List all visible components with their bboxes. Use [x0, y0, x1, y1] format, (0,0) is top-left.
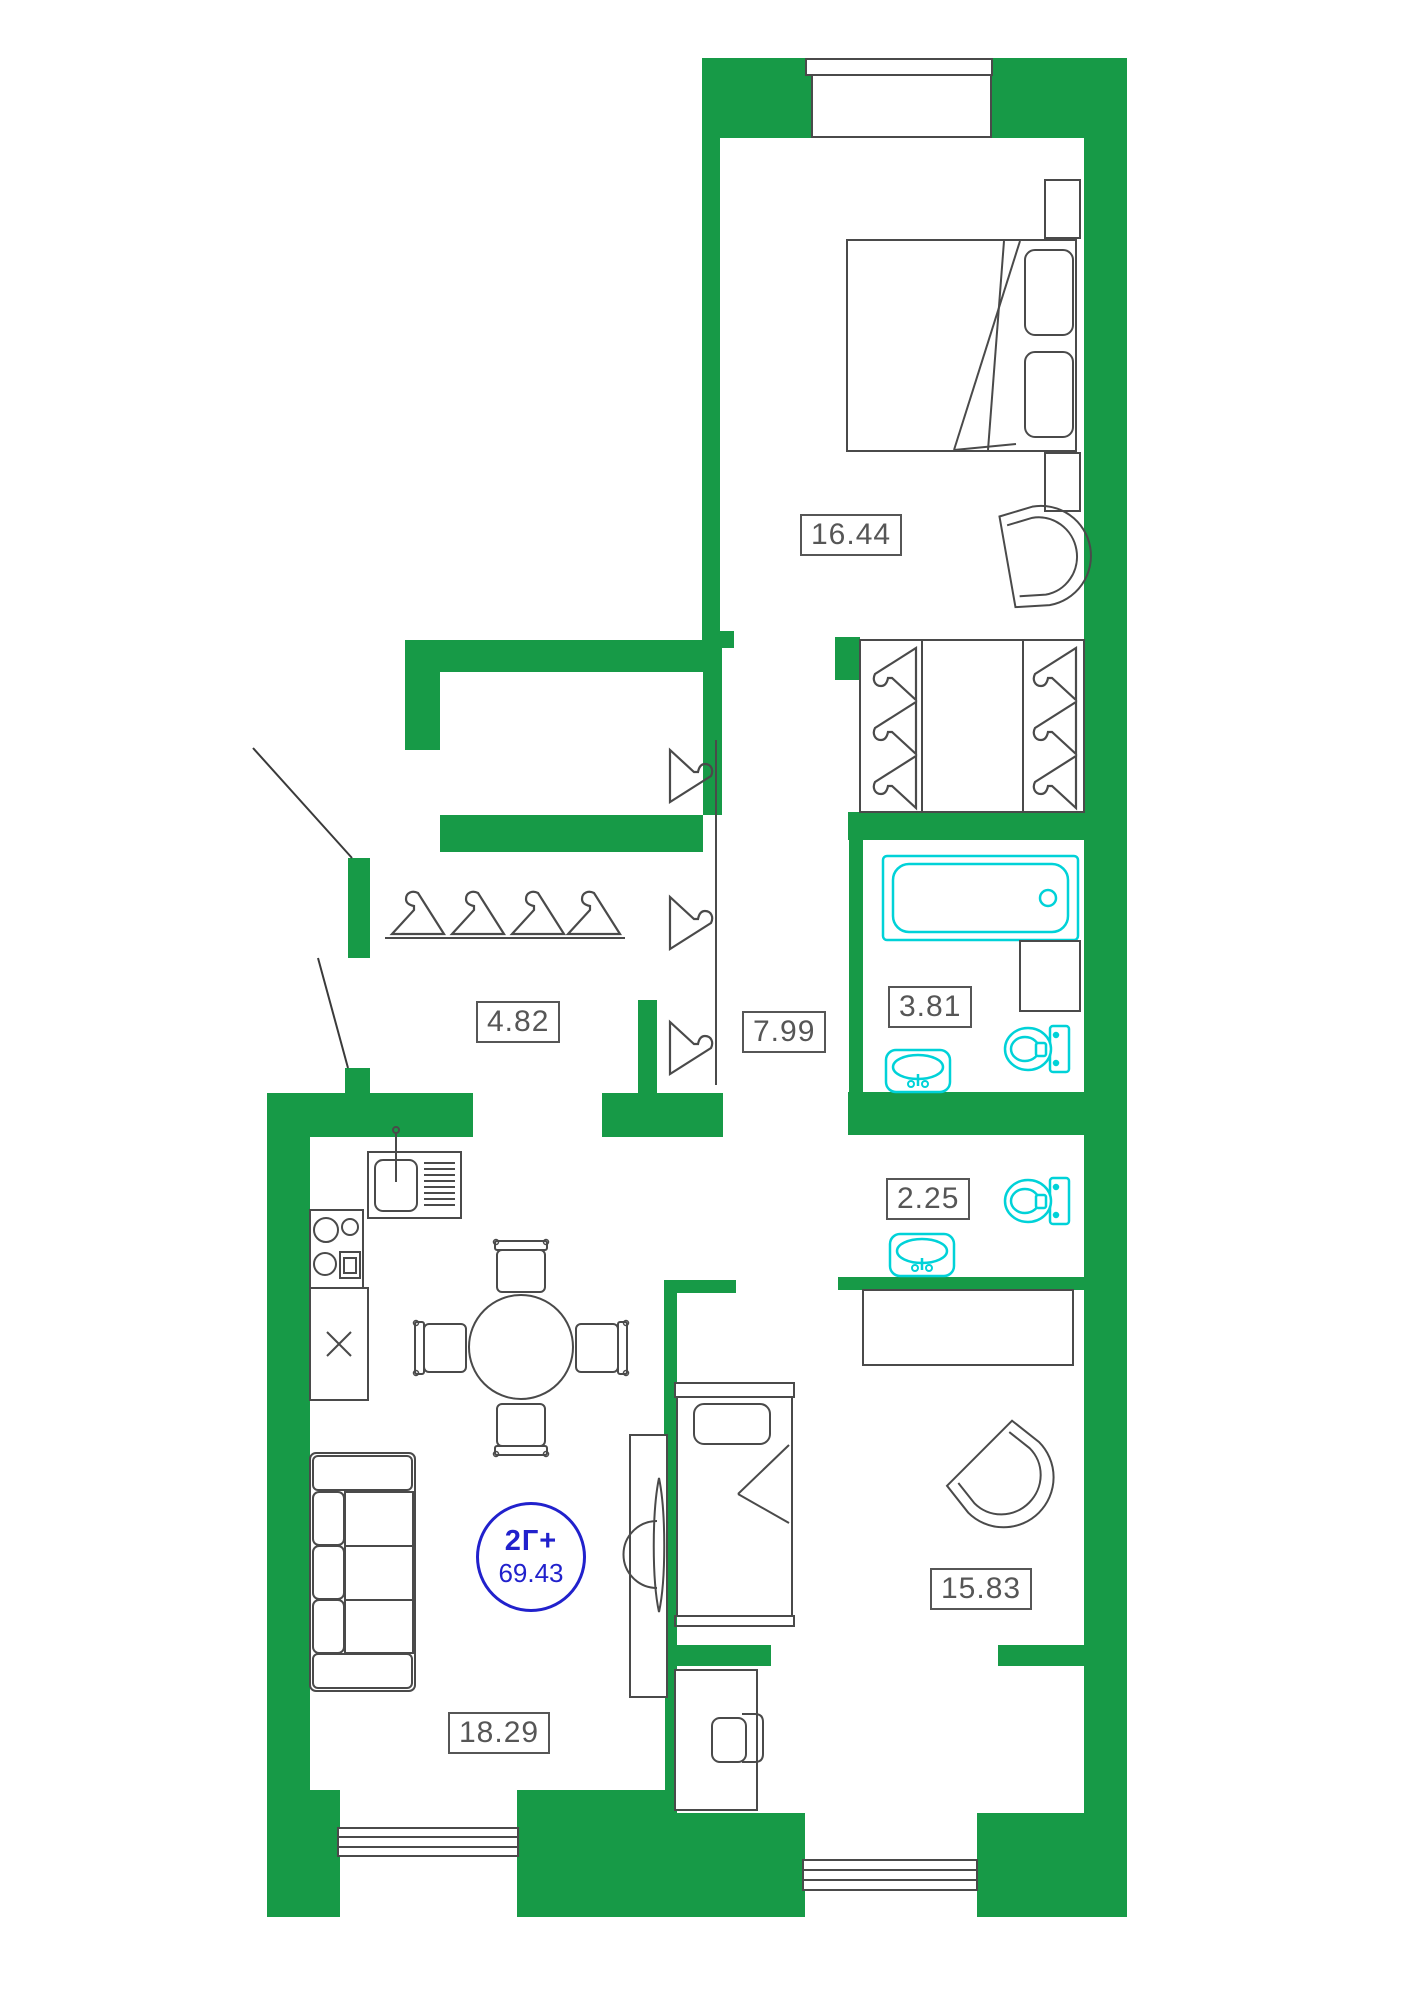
floor-plan: 16.44 4.82 7.99 3.81 2.25 15.83 18.29 2Г… — [0, 0, 1414, 2000]
tv-stand-icon — [624, 1435, 668, 1697]
hanger-icon — [392, 892, 444, 934]
sink-icon — [886, 1050, 950, 1092]
bedroom-top-furniture — [847, 180, 1099, 812]
bathroom-fixtures — [883, 856, 1080, 1092]
unit-total-area: 69.43 — [498, 1558, 563, 1589]
door-swing-icon — [318, 958, 348, 1068]
room-area-label-corridor: 7.99 — [742, 1011, 826, 1053]
hanger-icon — [512, 892, 564, 934]
single-bed-icon — [675, 1383, 794, 1626]
chair-icon — [576, 1321, 629, 1376]
toilet-icon — [1005, 1178, 1069, 1224]
window-icon — [806, 59, 992, 137]
unit-type-label: 2Г+ — [505, 1525, 558, 1558]
hanger-icon — [670, 897, 712, 949]
armchair-icon — [999, 498, 1099, 611]
nightstand-icon — [1045, 180, 1080, 238]
armchair-icon — [944, 1418, 1074, 1548]
door-swing-icon — [253, 748, 352, 858]
kitchen-cabinet-icon — [310, 1288, 368, 1400]
window-icon — [338, 1828, 518, 1856]
room-area-label-bedroom-top: 16.44 — [800, 514, 902, 556]
entry-fittings — [385, 892, 625, 938]
toilet-icon — [1005, 1026, 1069, 1072]
room-area-label-bathroom: 3.81 — [888, 986, 972, 1028]
double-bed-icon — [847, 240, 1076, 451]
dining-set — [414, 1240, 629, 1457]
nightstand-icon — [1045, 453, 1080, 511]
wardrobe-icon — [863, 1290, 1073, 1365]
shower-tray-icon — [1020, 941, 1080, 1011]
room-area-label-entry-hall: 4.82 — [476, 1001, 560, 1043]
stove-icon — [310, 1210, 363, 1288]
room-area-label-wc: 2.25 — [886, 1178, 970, 1220]
chair-icon — [494, 1240, 549, 1293]
window-icon — [803, 1860, 977, 1890]
chair-icon — [414, 1321, 467, 1376]
chair-icon — [494, 1404, 549, 1457]
bathtub-icon — [883, 856, 1078, 940]
unit-type-badge: 2Г+ 69.43 — [476, 1502, 586, 1612]
room-area-label-bedroom-right: 15.83 — [930, 1568, 1032, 1610]
door-swings — [253, 748, 352, 1068]
bedroom-right-furniture — [675, 1290, 1074, 1810]
floor-plan-lineart — [0, 0, 1414, 2000]
sink-icon — [890, 1234, 954, 1276]
hanger-icon — [670, 1022, 712, 1074]
hanger-icon — [568, 892, 620, 934]
hanger-icon — [452, 892, 504, 934]
room-area-label-living-kitchen: 18.29 — [448, 1712, 550, 1754]
kitchen-sink-icon — [368, 1127, 461, 1218]
wardrobe-icon — [860, 640, 1084, 812]
dining-table-icon — [469, 1295, 573, 1399]
sofa-icon — [310, 1453, 415, 1691]
